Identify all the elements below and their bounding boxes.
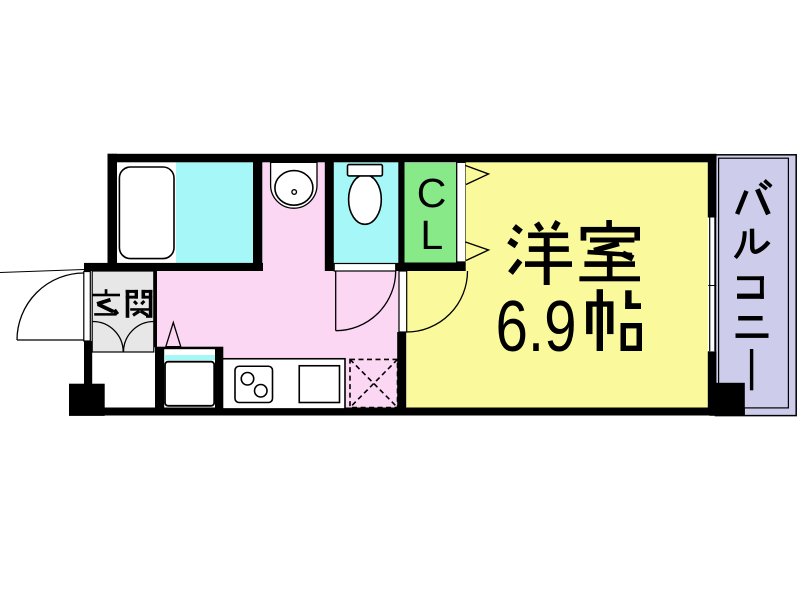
svg-text:C: C (417, 170, 447, 216)
svg-text:6.9: 6.9 (496, 286, 577, 366)
svg-text:L: L (420, 212, 443, 258)
